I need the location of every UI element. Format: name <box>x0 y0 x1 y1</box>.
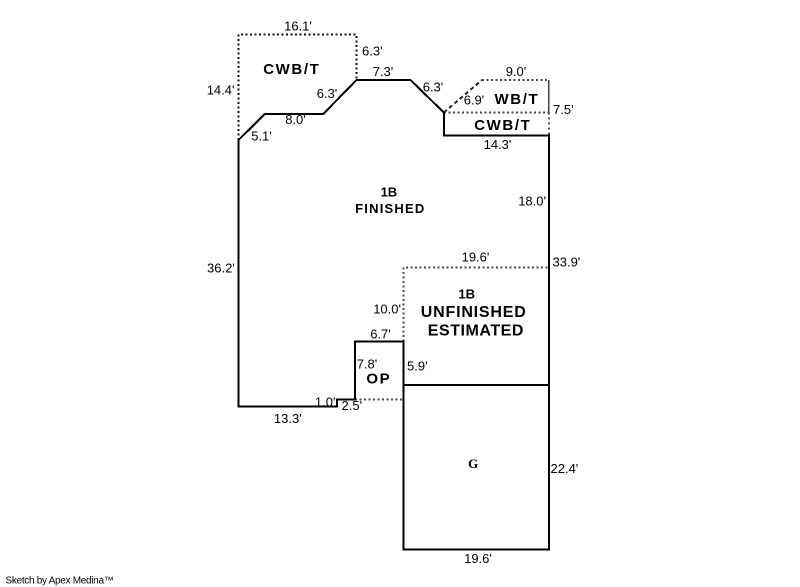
svg-text:G: G <box>468 456 478 471</box>
svg-text:CWB/T: CWB/T <box>263 61 320 78</box>
svg-text:36.2': 36.2' <box>207 260 235 275</box>
svg-text:7.8': 7.8' <box>357 357 378 372</box>
svg-text:10.0': 10.0' <box>373 302 401 317</box>
svg-text:22.4': 22.4' <box>551 461 579 476</box>
svg-text:16.1': 16.1' <box>284 19 312 34</box>
svg-text:7.5': 7.5' <box>553 102 574 117</box>
svg-text:14.4': 14.4' <box>207 83 235 98</box>
svg-text:19.6': 19.6' <box>464 551 492 566</box>
svg-text:5.9': 5.9' <box>407 358 428 373</box>
svg-text:FINISHED: FINISHED <box>355 201 425 216</box>
svg-text:6.3': 6.3' <box>317 86 338 101</box>
svg-text:33.9': 33.9' <box>553 254 581 269</box>
svg-text:6.9': 6.9' <box>464 93 485 108</box>
svg-text:6.7': 6.7' <box>370 327 391 342</box>
svg-text:6.3': 6.3' <box>362 44 383 59</box>
svg-text:13.3': 13.3' <box>274 411 302 426</box>
svg-text:CWB/T: CWB/T <box>474 117 531 134</box>
svg-text:UNFINISHED: UNFINISHED <box>421 304 527 321</box>
svg-text:14.3': 14.3' <box>484 137 512 152</box>
svg-text:6.3': 6.3' <box>423 80 444 95</box>
svg-text:Sketch by Apex Medina™: Sketch by Apex Medina™ <box>6 576 114 587</box>
svg-text:ESTIMATED: ESTIMATED <box>428 322 524 339</box>
svg-text:2.5': 2.5' <box>342 398 363 413</box>
svg-text:1.0': 1.0' <box>315 394 336 409</box>
svg-text:18.0': 18.0' <box>518 194 546 209</box>
svg-text:9.0': 9.0' <box>506 64 527 79</box>
svg-text:5.1': 5.1' <box>251 129 272 144</box>
svg-text:1B: 1B <box>458 286 475 301</box>
svg-text:WB/T: WB/T <box>495 91 540 108</box>
svg-text:19.6': 19.6' <box>462 249 490 264</box>
svg-text:1B: 1B <box>381 184 398 199</box>
svg-text:8.0': 8.0' <box>285 112 306 127</box>
svg-text:7.3': 7.3' <box>373 64 394 79</box>
svg-text:OP: OP <box>366 371 391 388</box>
